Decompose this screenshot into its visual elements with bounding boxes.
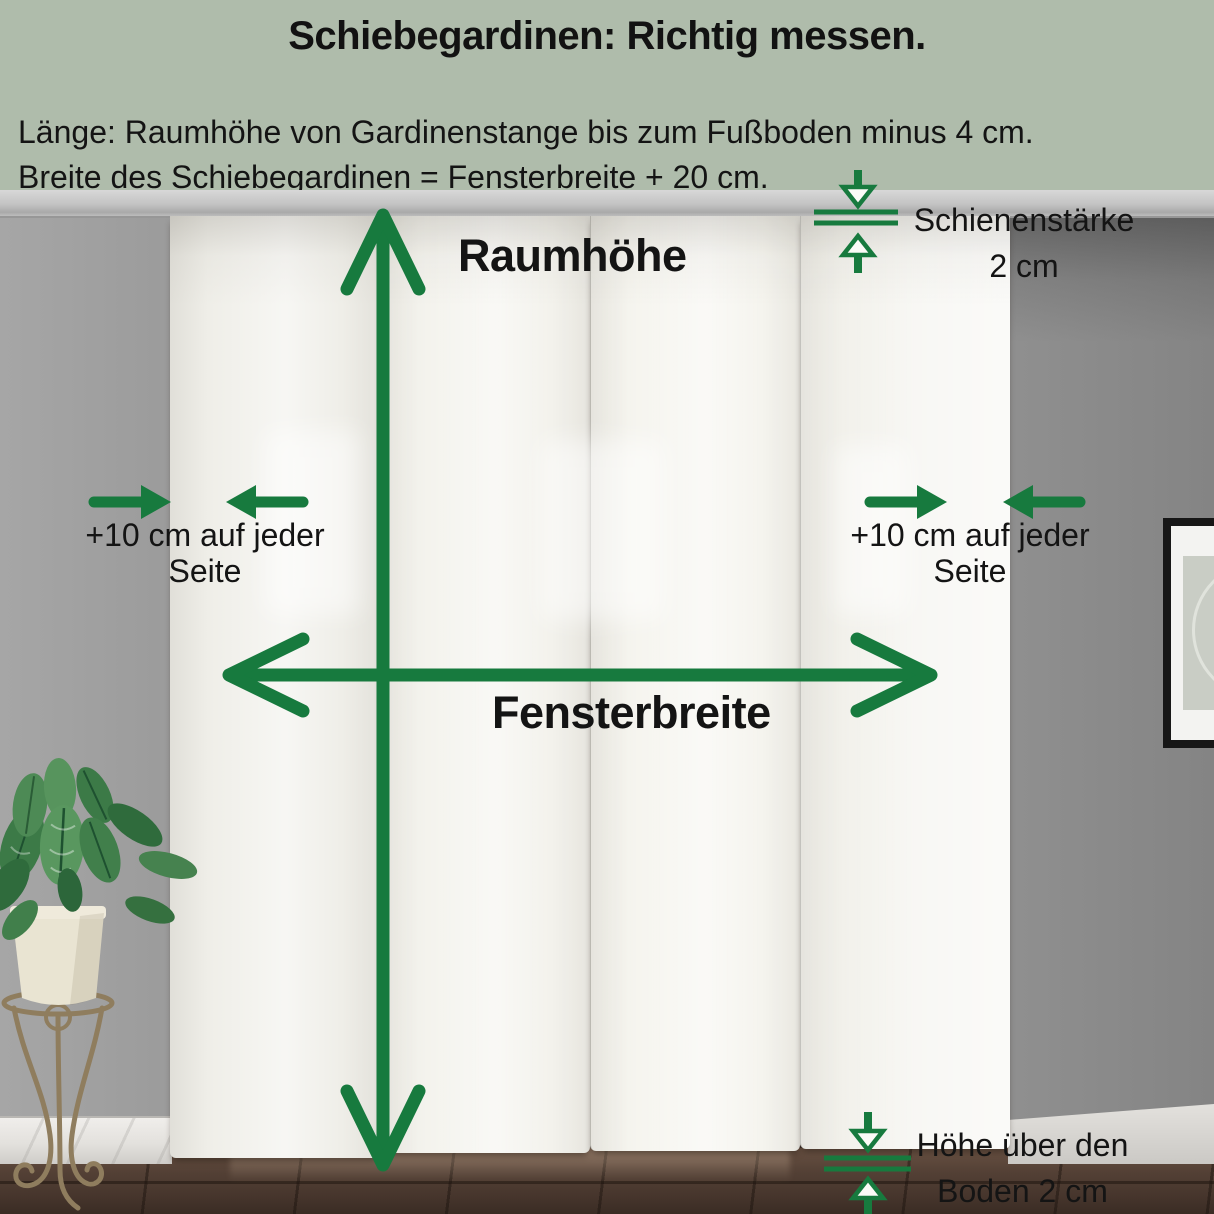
right-margin-label: +10 cm auf jeder Seite	[815, 517, 1125, 589]
curtain-measuring-guide: Schiebegardinen: Richtig messen. Länge: …	[0, 0, 1214, 1214]
plant-stand	[4, 992, 112, 1208]
frame-artwork	[1183, 556, 1214, 710]
left-margin-line1: +10 cm auf jeder	[50, 517, 360, 553]
picture-frame	[1163, 518, 1214, 748]
page-title: Schiebegardinen: Richtig messen.	[0, 14, 1214, 59]
potted-plant	[0, 750, 225, 1214]
left-margin-line2: Seite	[50, 553, 360, 589]
artwork-circle	[1192, 560, 1214, 700]
light-reflection	[540, 440, 665, 620]
rail-thickness-line1: Schienenstärke	[898, 197, 1150, 243]
left-margin-label: +10 cm auf jeder Seite	[50, 517, 360, 589]
right-margin-line2: Seite	[815, 553, 1125, 589]
floor-clearance-label: Höhe über den Boden 2 cm	[900, 1122, 1145, 1214]
curtain-panel	[380, 216, 590, 1153]
rail-thickness-label: Schienenstärke 2 cm	[898, 197, 1150, 289]
length-instruction: Länge: Raumhöhe von Gardinenstange bis z…	[18, 114, 1034, 151]
curtain-panel	[590, 216, 800, 1151]
curtain-panel	[800, 216, 1010, 1149]
rail-thickness-line2: 2 cm	[898, 243, 1150, 289]
floor-clearance-line2: Boden 2 cm	[900, 1168, 1145, 1214]
frame-mat	[1171, 526, 1214, 740]
floor-clearance-line1: Höhe über den	[900, 1122, 1145, 1168]
room-height-label: Raumhöhe	[458, 232, 687, 280]
right-margin-line1: +10 cm auf jeder	[815, 517, 1125, 553]
instructions-header: Schiebegardinen: Richtig messen. Länge: …	[0, 0, 1214, 190]
window-width-label: Fensterbreite	[492, 689, 771, 737]
